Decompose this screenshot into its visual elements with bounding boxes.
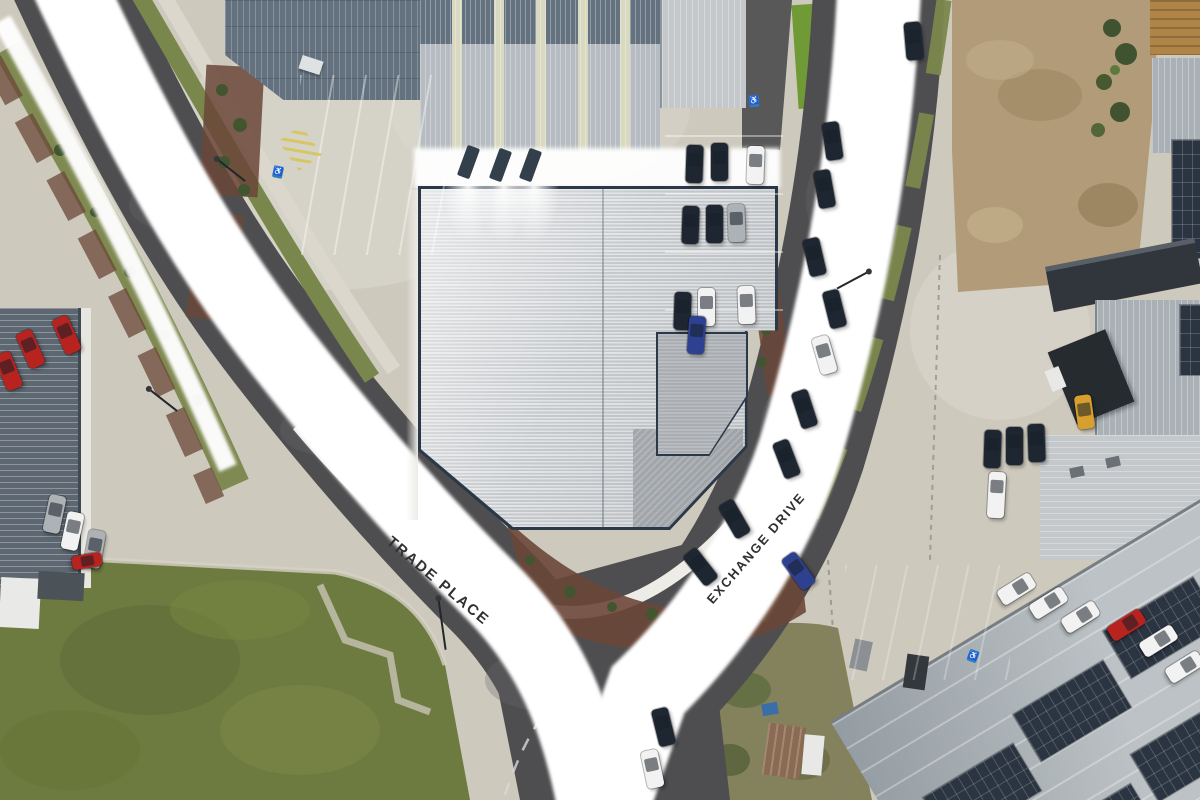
east-roof-small	[1152, 58, 1200, 153]
parked-car	[983, 430, 1001, 469]
solar-array	[1013, 660, 1131, 761]
garden-bed	[200, 65, 265, 198]
roof-window	[1105, 456, 1121, 469]
north-roof-east-wing	[660, 0, 746, 108]
roof-window	[1069, 466, 1085, 479]
aerial-scene: ♿ ♿ ♿ TRADE PLACE EXCHANGE DRIVE	[0, 0, 1200, 800]
parked-car	[746, 146, 764, 185]
grass-texture	[170, 580, 310, 640]
parked-car	[711, 143, 728, 181]
parked-car	[727, 204, 745, 243]
parked-car	[903, 21, 923, 60]
parked-car	[1006, 427, 1023, 465]
north-warehouse-roof	[420, 0, 660, 152]
small-white-roof	[0, 577, 41, 629]
grass-texture	[220, 685, 380, 775]
parked-car	[706, 205, 723, 243]
light-fan	[508, 186, 560, 244]
parked-car	[1027, 424, 1045, 463]
solar-array	[923, 743, 1041, 800]
tan-structure	[1150, 0, 1200, 55]
parked-van	[987, 472, 1006, 519]
parking-bays-northwest	[300, 75, 450, 255]
truck-box	[801, 734, 824, 776]
parked-car	[681, 206, 699, 245]
small-dark-roof	[37, 571, 84, 601]
parked-car	[687, 315, 707, 354]
dirt-patch	[966, 40, 1034, 80]
grass-texture	[0, 710, 140, 790]
solar-patch	[1180, 305, 1200, 375]
dirt-patch	[1078, 183, 1138, 227]
parked-car	[685, 145, 703, 184]
parking-bays-southeast	[845, 565, 1010, 680]
parked-car	[737, 286, 755, 325]
solar-array	[1130, 700, 1200, 800]
shed	[762, 723, 807, 780]
solar-array	[1040, 784, 1158, 800]
disabled-parking-icon: ♿	[749, 95, 760, 108]
dirt-patch	[967, 207, 1023, 243]
